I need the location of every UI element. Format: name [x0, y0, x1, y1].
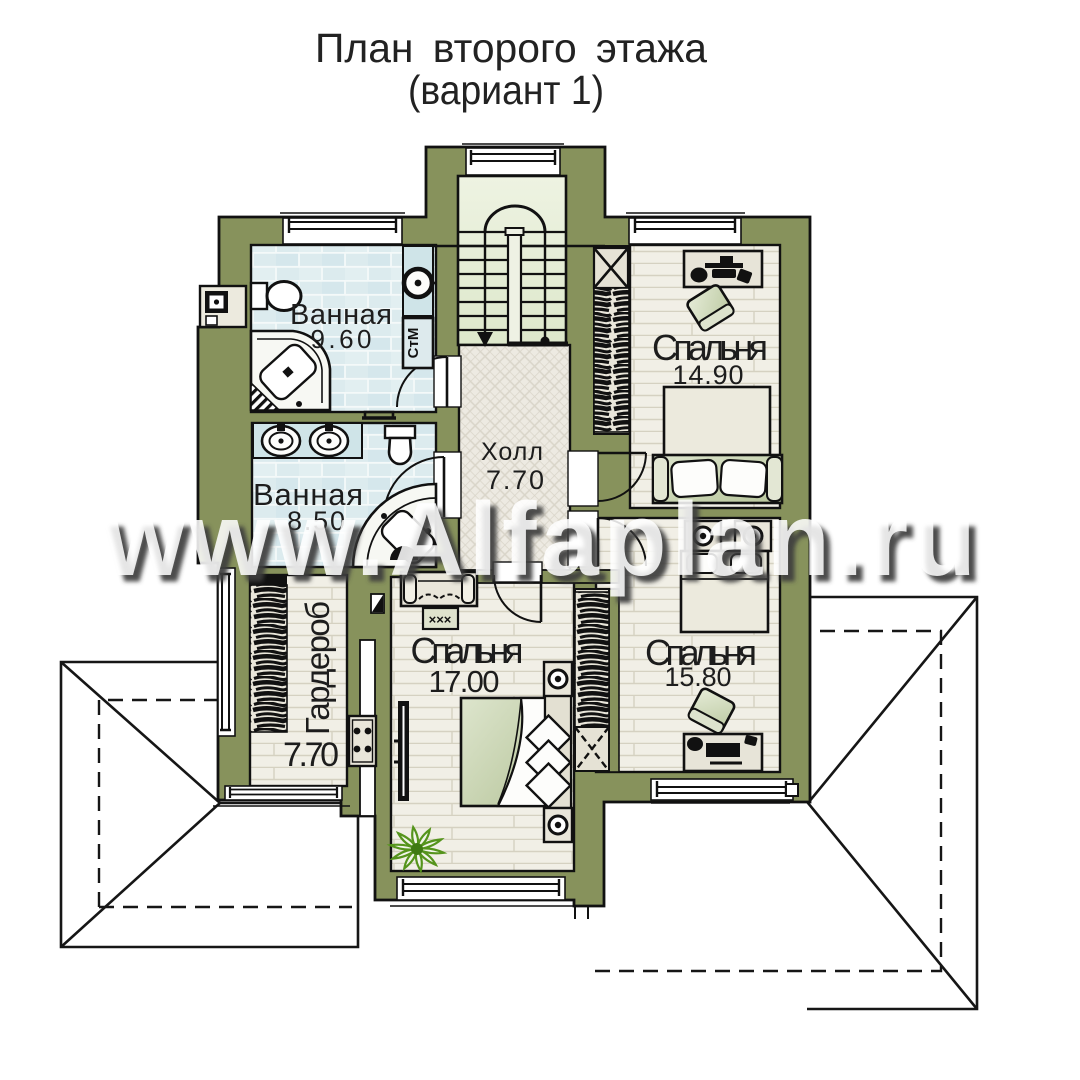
svg-text:СтМ: СтМ — [405, 328, 422, 359]
svg-text:17.00: 17.00 — [429, 664, 500, 699]
svg-text:14.90: 14.90 — [673, 360, 744, 390]
svg-text:9.60: 9.60 — [311, 324, 372, 354]
svg-text:×××: ××× — [429, 612, 452, 627]
svg-text:План второго этажа: План второго этажа — [315, 25, 707, 71]
svg-text:Холл: Холл — [481, 438, 543, 466]
svg-text:7.70: 7.70 — [283, 736, 339, 774]
svg-text:Гардероб: Гардероб — [299, 601, 336, 735]
svg-text:(вариант 1): (вариант 1) — [408, 67, 604, 113]
svg-text:15.80: 15.80 — [665, 662, 732, 692]
